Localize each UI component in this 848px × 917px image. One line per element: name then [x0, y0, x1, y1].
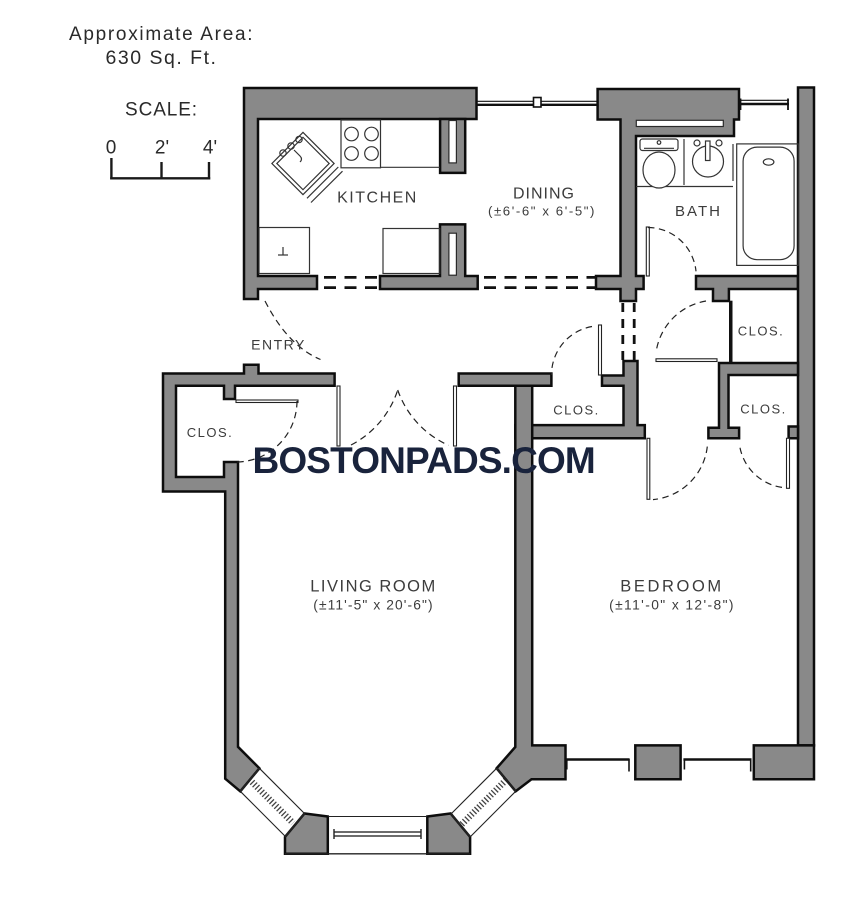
svg-text:SCALE:: SCALE:	[125, 100, 198, 121]
svg-text:Approximate Area:: Approximate Area:	[69, 24, 254, 45]
svg-text:(±11'-0" x 12'-8"): (±11'-0" x 12'-8")	[609, 598, 735, 613]
svg-text:CLOS.: CLOS.	[553, 403, 600, 418]
svg-text:DINING: DINING	[513, 186, 575, 203]
svg-text:(±6'-6" x 6'-5"): (±6'-6" x 6'-5")	[488, 204, 596, 219]
svg-text:630 Sq. Ft.: 630 Sq. Ft.	[106, 47, 218, 69]
svg-text:0: 0	[106, 138, 117, 159]
svg-text:CLOS.: CLOS.	[738, 324, 785, 339]
svg-text:BATH: BATH	[675, 203, 722, 220]
svg-text:CLOS.: CLOS.	[740, 402, 787, 417]
svg-text:CLOS.: CLOS.	[187, 425, 234, 440]
svg-text:ENTRY: ENTRY	[251, 337, 306, 353]
svg-text:(±11'-5" x 20'-6"): (±11'-5" x 20'-6")	[313, 598, 433, 613]
svg-text:LIVING ROOM: LIVING ROOM	[310, 578, 437, 596]
svg-text:4': 4'	[203, 138, 217, 159]
svg-text:BOSTONPADS.COM: BOSTONPADS.COM	[253, 440, 595, 481]
svg-text:KITCHEN: KITCHEN	[337, 190, 418, 207]
svg-text:2': 2'	[155, 138, 169, 159]
svg-text:BEDROOM: BEDROOM	[620, 578, 723, 596]
